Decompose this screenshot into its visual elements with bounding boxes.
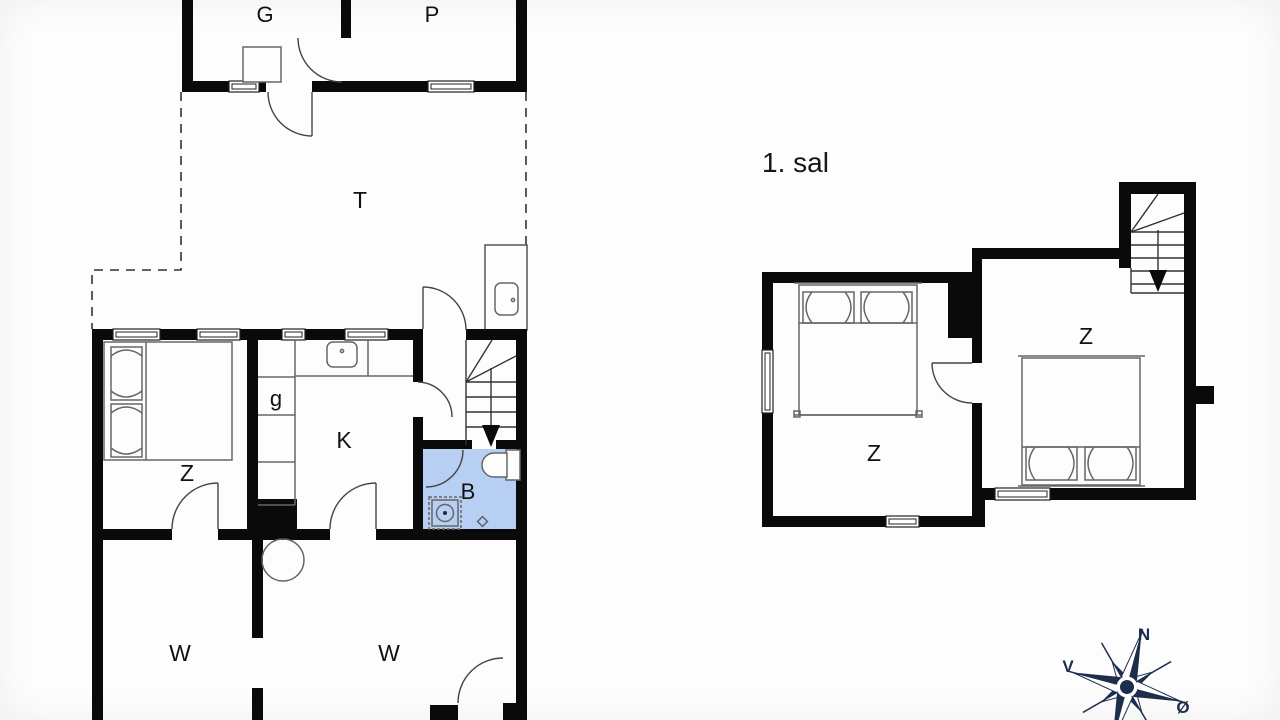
door-arc [458, 658, 503, 703]
door-opening [330, 529, 376, 540]
kitchen-sink [327, 342, 357, 367]
compass-east-label: Ø [1176, 698, 1189, 717]
first-floor-plan: 1. sal [762, 147, 1214, 527]
compass-north-label: N [1138, 625, 1150, 644]
wall [430, 705, 458, 720]
room-label-annex: P [425, 2, 440, 27]
wall [972, 403, 982, 488]
room-label-bathroom: B [461, 479, 476, 504]
vestibule [485, 245, 527, 330]
window [995, 488, 1050, 500]
toilet-tank [506, 450, 520, 480]
staircase-ground [466, 340, 516, 447]
door-opening [172, 529, 218, 540]
wall [516, 0, 527, 92]
floor-plan-drawing: G P T Z g K B W W 1. sal [0, 0, 1280, 720]
room-label-bedroom: Z [180, 460, 194, 486]
door-arc [423, 287, 466, 330]
wall [1119, 182, 1131, 268]
wall [762, 413, 773, 527]
chimney [257, 499, 297, 529]
wall [762, 272, 948, 283]
door-arc [330, 483, 376, 529]
room-label-kitchen: K [336, 427, 352, 453]
door-arc [418, 382, 452, 417]
wall [972, 248, 1131, 259]
wall [762, 516, 985, 527]
door-arc [172, 483, 218, 529]
floor-plan-page: G P T Z g K B W W 1. sal [0, 0, 1280, 720]
wall [972, 248, 982, 363]
compass-rose: N V Ø [1052, 613, 1203, 720]
wall [92, 529, 527, 540]
window [113, 329, 160, 340]
window [282, 329, 305, 340]
wall [182, 0, 193, 92]
wall [972, 488, 985, 527]
toilet-bowl [482, 453, 507, 477]
wall-stub [1196, 386, 1214, 404]
compass-major-points [1058, 618, 1195, 720]
door-arc [932, 363, 972, 403]
window [197, 329, 240, 340]
wall [247, 329, 258, 529]
window [428, 81, 474, 92]
window [886, 516, 919, 527]
room-label-garage: G [256, 2, 273, 27]
wall [1184, 182, 1196, 500]
outbuilding [182, 0, 527, 136]
door-opening [423, 329, 466, 340]
wall [762, 272, 773, 350]
cabinet [243, 47, 281, 82]
room-label-bedroom-right: Z [1079, 323, 1093, 349]
wall [948, 272, 972, 338]
doors-first-floor [932, 363, 972, 403]
room-label-living-left: W [169, 640, 191, 666]
wall [252, 688, 263, 720]
double-bed [1018, 356, 1145, 486]
wall [413, 417, 423, 529]
double-bed [794, 283, 922, 417]
wall [496, 440, 527, 449]
wall-divider-g-p [341, 0, 351, 38]
terrace-outline [92, 92, 526, 329]
stair-arrow-head [1149, 270, 1167, 292]
wall [252, 540, 263, 638]
window [762, 350, 773, 413]
door-arc [298, 38, 342, 82]
window [345, 329, 388, 340]
room-label-bedroom-left: Z [867, 440, 881, 466]
kitchen-counter [258, 340, 413, 505]
room-label-wardrobe: g [270, 386, 282, 411]
wall [92, 329, 103, 720]
staircase-first-floor [1131, 194, 1184, 293]
drain-dot [443, 511, 447, 515]
door-arc [268, 92, 312, 136]
compass-west-label: V [1062, 657, 1074, 676]
first-floor-title: 1. sal [762, 147, 829, 178]
wall [413, 440, 472, 449]
wall [503, 703, 527, 720]
ground-floor-plan: G P T Z g K B W W [92, 0, 527, 720]
room-label-terrace: T [353, 187, 367, 213]
double-bed [104, 342, 232, 460]
wall [516, 329, 527, 720]
wood-stove [262, 539, 304, 581]
wall [413, 329, 423, 382]
room-label-living-right: W [378, 640, 400, 666]
